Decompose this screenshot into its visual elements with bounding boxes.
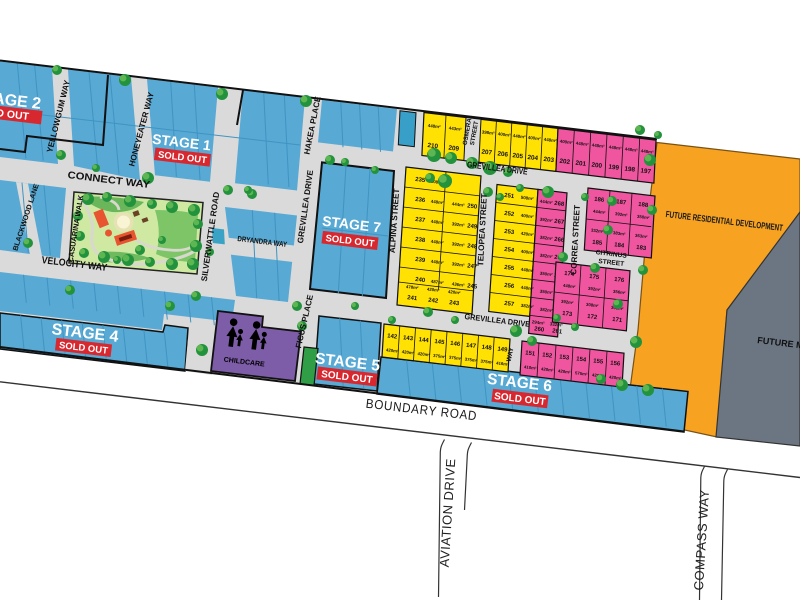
svg-text:252: 252: [504, 211, 515, 218]
svg-text:152: 152: [542, 352, 553, 359]
svg-text:205: 205: [512, 152, 524, 160]
svg-text:175: 175: [589, 274, 600, 281]
svg-text:185: 185: [592, 240, 603, 247]
svg-text:268: 268: [554, 201, 565, 208]
svg-text:184: 184: [614, 242, 625, 249]
svg-text:243: 243: [449, 300, 460, 307]
svg-text:260: 260: [534, 326, 545, 333]
svg-text:241: 241: [407, 295, 418, 302]
svg-text:239: 239: [415, 257, 426, 264]
svg-text:153: 153: [559, 354, 570, 361]
svg-text:197: 197: [640, 167, 652, 175]
svg-text:156: 156: [610, 361, 621, 368]
svg-text:267: 267: [554, 219, 565, 226]
svg-text:187: 187: [616, 199, 627, 206]
svg-text:238: 238: [415, 237, 426, 244]
svg-text:154: 154: [576, 356, 587, 363]
svg-text:176: 176: [614, 277, 625, 284]
svg-text:254: 254: [504, 247, 515, 254]
svg-text:143: 143: [403, 335, 414, 342]
svg-text:172: 172: [587, 314, 598, 321]
svg-text:186: 186: [594, 197, 605, 204]
svg-text:204: 204: [527, 154, 539, 162]
svg-text:199: 199: [608, 164, 620, 172]
svg-text:146: 146: [450, 341, 461, 348]
svg-text:257: 257: [504, 301, 515, 308]
svg-text:251: 251: [504, 193, 515, 200]
svg-text:200: 200: [591, 162, 603, 170]
svg-text:201: 201: [575, 160, 587, 168]
svg-text:155: 155: [593, 358, 604, 365]
svg-text:171: 171: [612, 317, 623, 324]
svg-text:209: 209: [448, 145, 460, 153]
svg-text:240: 240: [415, 277, 426, 284]
svg-text:144: 144: [418, 337, 429, 344]
svg-text:203: 203: [543, 156, 555, 164]
svg-text:242: 242: [428, 298, 439, 305]
svg-text:145: 145: [434, 339, 445, 346]
svg-text:198: 198: [624, 166, 636, 174]
svg-text:250: 250: [467, 203, 478, 210]
svg-text:237: 237: [415, 217, 426, 224]
svg-text:266: 266: [554, 237, 565, 244]
svg-text:253: 253: [504, 229, 515, 236]
svg-text:151: 151: [525, 350, 536, 357]
svg-text:206: 206: [497, 150, 509, 158]
svg-text:255: 255: [504, 265, 515, 272]
svg-text:236: 236: [415, 197, 426, 204]
svg-text:249: 249: [467, 223, 478, 230]
svg-text:202: 202: [559, 158, 571, 166]
svg-text:142: 142: [387, 333, 398, 340]
svg-text:148: 148: [481, 345, 492, 352]
svg-text:256: 256: [504, 283, 515, 290]
svg-text:261: 261: [552, 328, 563, 335]
svg-text:207: 207: [481, 149, 493, 157]
svg-text:173: 173: [562, 311, 573, 318]
svg-text:183: 183: [636, 245, 647, 252]
svg-text:147: 147: [466, 343, 477, 350]
svg-text:235: 235: [415, 177, 426, 184]
svg-text:245: 245: [467, 283, 478, 290]
